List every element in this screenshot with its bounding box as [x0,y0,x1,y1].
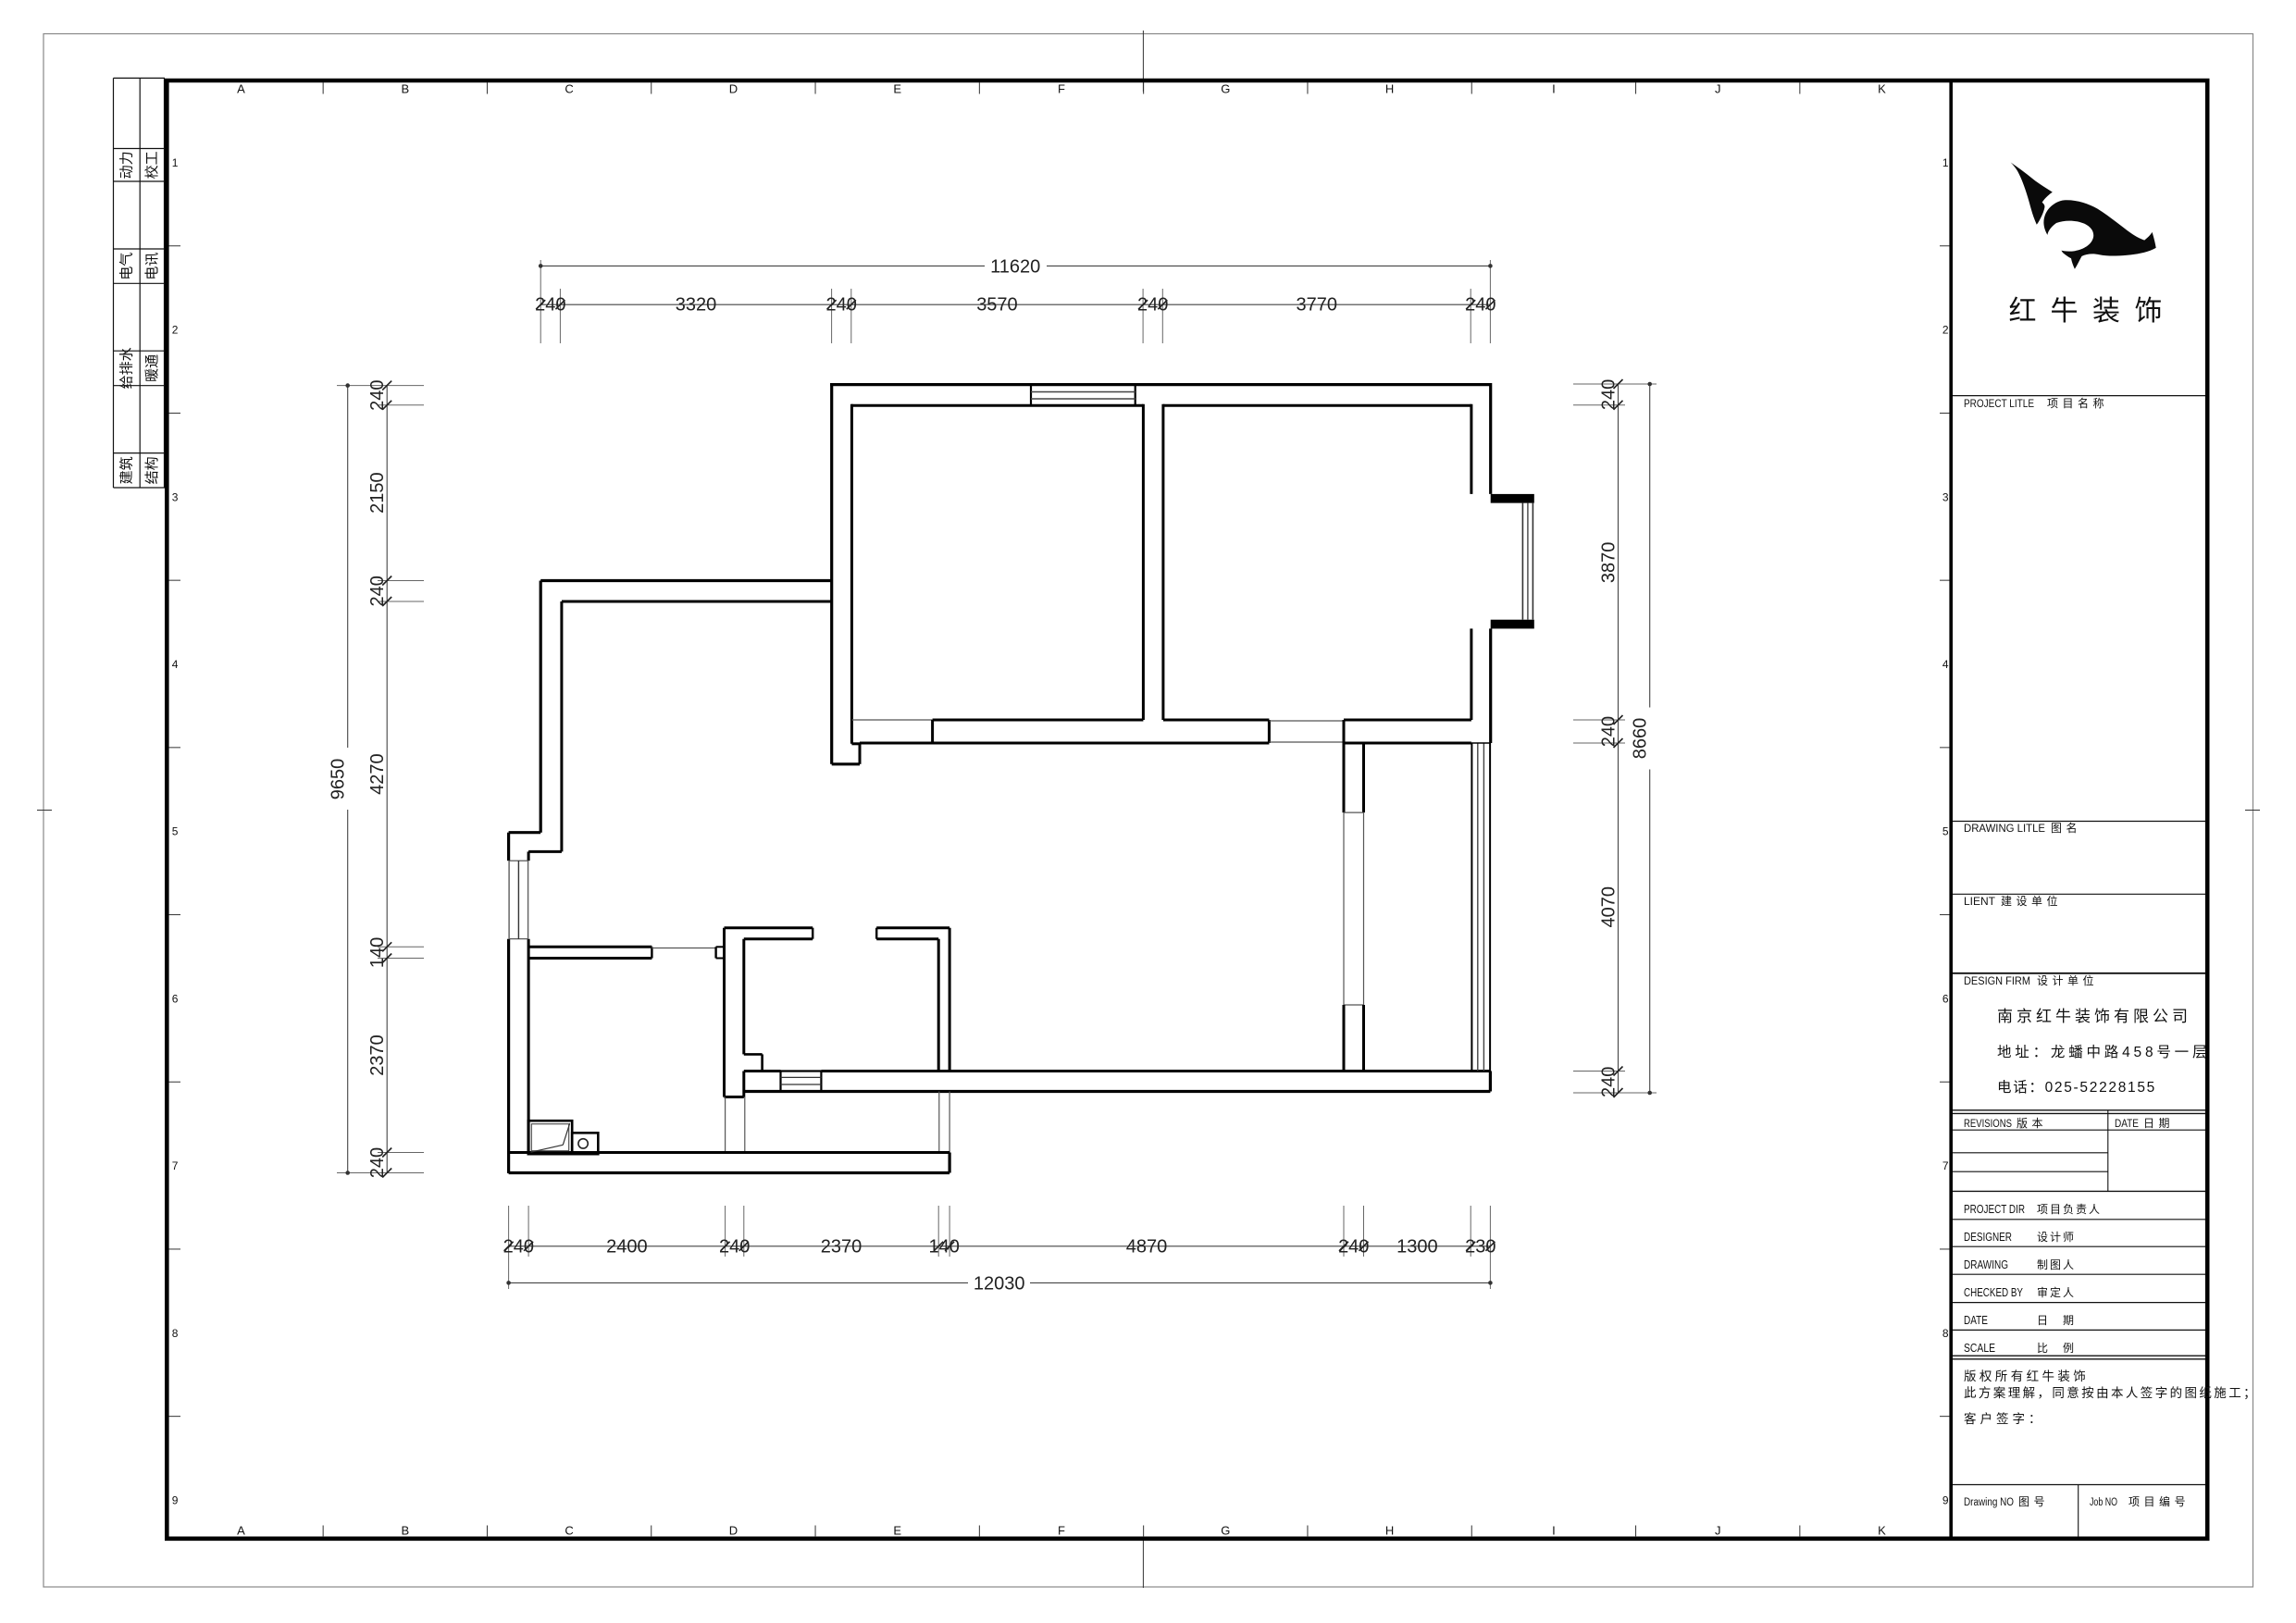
svg-text:动力: 动力 [119,151,135,179]
svg-text:设计师: 设计师 [2037,1231,2076,1244]
svg-text:8660: 8660 [1631,718,1651,760]
svg-text:CHECKED BY: CHECKED BY [1964,1286,2024,1299]
svg-text:3: 3 [172,490,179,503]
svg-text:DRAWING LITLE: DRAWING LITLE [1964,824,2045,835]
svg-text:电气: 电气 [119,253,135,280]
svg-text:地址：龙蟠中路458号一层: 地址：龙蟠中路458号一层 [1997,1044,2210,1060]
svg-text:5: 5 [1942,825,1949,838]
svg-text:1: 1 [172,156,179,169]
svg-text:红: 红 [2009,296,2037,327]
svg-text:给排水: 给排水 [119,347,135,389]
svg-text:B: B [401,82,409,96]
svg-text:240: 240 [1599,1067,1620,1097]
svg-text:240: 240 [719,1236,750,1257]
svg-text:8: 8 [1942,1327,1949,1340]
svg-text:240: 240 [367,1147,388,1178]
svg-text:DESIGNER: DESIGNER [1964,1231,2012,1244]
svg-text:E: E [893,1524,901,1538]
svg-text:4: 4 [172,658,179,671]
svg-text:D: D [729,82,738,96]
svg-text:H: H [1385,82,1394,96]
svg-text:9: 9 [1942,1494,1949,1507]
svg-text:建设单位: 建设单位 [2001,894,2062,908]
svg-text:装: 装 [2092,296,2120,327]
svg-text:I: I [1552,1524,1556,1538]
svg-text:电讯: 电讯 [144,253,160,280]
svg-text:3770: 3770 [1297,295,1338,316]
svg-text:REVISIONS: REVISIONS [1964,1119,2012,1130]
svg-text:PROJECT LITLE: PROJECT LITLE [1964,399,2034,410]
svg-text:饰: 饰 [2135,296,2163,327]
svg-text:230: 230 [1465,1236,1496,1257]
svg-text:审定人: 审定人 [2037,1285,2076,1299]
svg-text:3870: 3870 [1599,542,1620,584]
svg-text:牛: 牛 [2051,296,2079,327]
svg-text:4870: 4870 [1126,1236,1168,1257]
svg-text:2: 2 [1942,324,1949,337]
svg-text:6: 6 [1942,992,1949,1005]
svg-text:J: J [1715,1524,1721,1538]
svg-text:2: 2 [172,324,179,337]
svg-text:G: G [1221,82,1230,96]
svg-text:项目负责人: 项目负责人 [2037,1203,2102,1216]
svg-text:240: 240 [1599,379,1620,410]
svg-text:2400: 2400 [606,1236,648,1257]
svg-text:240: 240 [1599,716,1620,747]
svg-text:5: 5 [172,825,179,838]
svg-text:240: 240 [367,576,388,606]
svg-text:F: F [1058,1524,1065,1538]
svg-text:暖通: 暖通 [144,354,160,382]
svg-text:7: 7 [1942,1159,1949,1172]
svg-text:Job NO: Job NO [2090,1497,2117,1508]
svg-text:4270: 4270 [367,753,388,795]
svg-text:140: 140 [928,1236,959,1257]
svg-text:SCALE: SCALE [1964,1342,1995,1355]
svg-text:DRAWING: DRAWING [1964,1258,2008,1271]
svg-text:结构: 结构 [144,456,160,484]
svg-text:建筑: 建筑 [119,456,135,484]
svg-text:PROJECT DIR: PROJECT DIR [1964,1203,2025,1216]
svg-text:此方案理解，同意按由本人签字的图纸施工；: 此方案理解，同意按由本人签字的图纸施工； [1964,1385,2258,1401]
svg-text:K: K [1878,1524,1886,1538]
svg-text:D: D [729,1524,738,1538]
svg-text:6: 6 [172,992,179,1005]
svg-text:H: H [1385,1524,1394,1538]
svg-text:F: F [1058,82,1065,96]
svg-text:240: 240 [367,380,388,411]
svg-text:7: 7 [172,1159,179,1172]
svg-text:2150: 2150 [367,472,388,514]
svg-text:240: 240 [1338,1236,1369,1257]
svg-text:3: 3 [1942,490,1949,503]
svg-text:9: 9 [172,1494,179,1507]
svg-text:2370: 2370 [821,1236,863,1257]
svg-text:1: 1 [1942,156,1949,169]
svg-text:版权所有红牛装饰: 版权所有红牛装饰 [1964,1369,2089,1383]
svg-text:制图人: 制图人 [2037,1258,2076,1271]
svg-text:I: I [1552,82,1556,96]
svg-text:C: C [565,1524,573,1538]
svg-text:比 例: 比 例 [2037,1342,2076,1355]
svg-text:12030: 12030 [974,1273,1025,1294]
svg-text:设计单位: 设计单位 [2037,973,2098,987]
svg-text:Drawing NO: Drawing NO [1964,1497,2014,1508]
svg-text:8: 8 [172,1327,179,1340]
svg-text:140: 140 [367,937,388,968]
svg-text:日期: 日期 [2143,1117,2174,1130]
svg-text:DATE: DATE [2115,1119,2139,1130]
svg-text:240: 240 [1465,295,1496,316]
svg-text:G: G [1221,1524,1230,1538]
svg-text:LIENT: LIENT [1964,897,1995,908]
svg-text:1300: 1300 [1396,1236,1438,1257]
svg-text:240: 240 [1137,295,1168,316]
svg-text:B: B [401,1524,409,1538]
svg-text:E: E [893,82,901,96]
svg-text:11620: 11620 [990,256,1040,277]
svg-text:240: 240 [826,295,857,316]
svg-text:校工: 校工 [144,151,160,179]
svg-text:图名: 图名 [2051,821,2081,835]
svg-text:项目名称: 项目名称 [2047,396,2108,410]
svg-text:日 期: 日 期 [2037,1314,2076,1327]
svg-text:3570: 3570 [976,295,1018,316]
svg-text:4: 4 [1942,658,1949,671]
svg-text:DATE: DATE [1964,1314,1988,1327]
svg-text:南京红牛装饰有限公司: 南京红牛装饰有限公司 [1997,1008,2191,1025]
svg-text:电话：025-52228155: 电话：025-52228155 [1997,1079,2156,1096]
svg-text:2370: 2370 [367,1035,388,1076]
svg-text:240: 240 [503,1236,534,1257]
svg-text:J: J [1715,82,1721,96]
svg-text:3320: 3320 [676,295,717,316]
svg-text:项目编号: 项目编号 [2128,1494,2190,1508]
svg-text:4070: 4070 [1599,886,1620,928]
svg-text:240: 240 [535,295,565,316]
svg-text:DESIGN FIRM: DESIGN FIRM [1964,976,2030,987]
svg-text:版本: 版本 [2017,1117,2047,1130]
svg-text:客户签字：: 客户签字： [1964,1411,2045,1426]
svg-text:K: K [1878,82,1886,96]
svg-text:A: A [237,82,245,96]
svg-text:图号: 图号 [2018,1495,2049,1508]
svg-text:A: A [237,1524,245,1538]
svg-text:C: C [565,82,573,96]
svg-text:9650: 9650 [329,759,349,800]
